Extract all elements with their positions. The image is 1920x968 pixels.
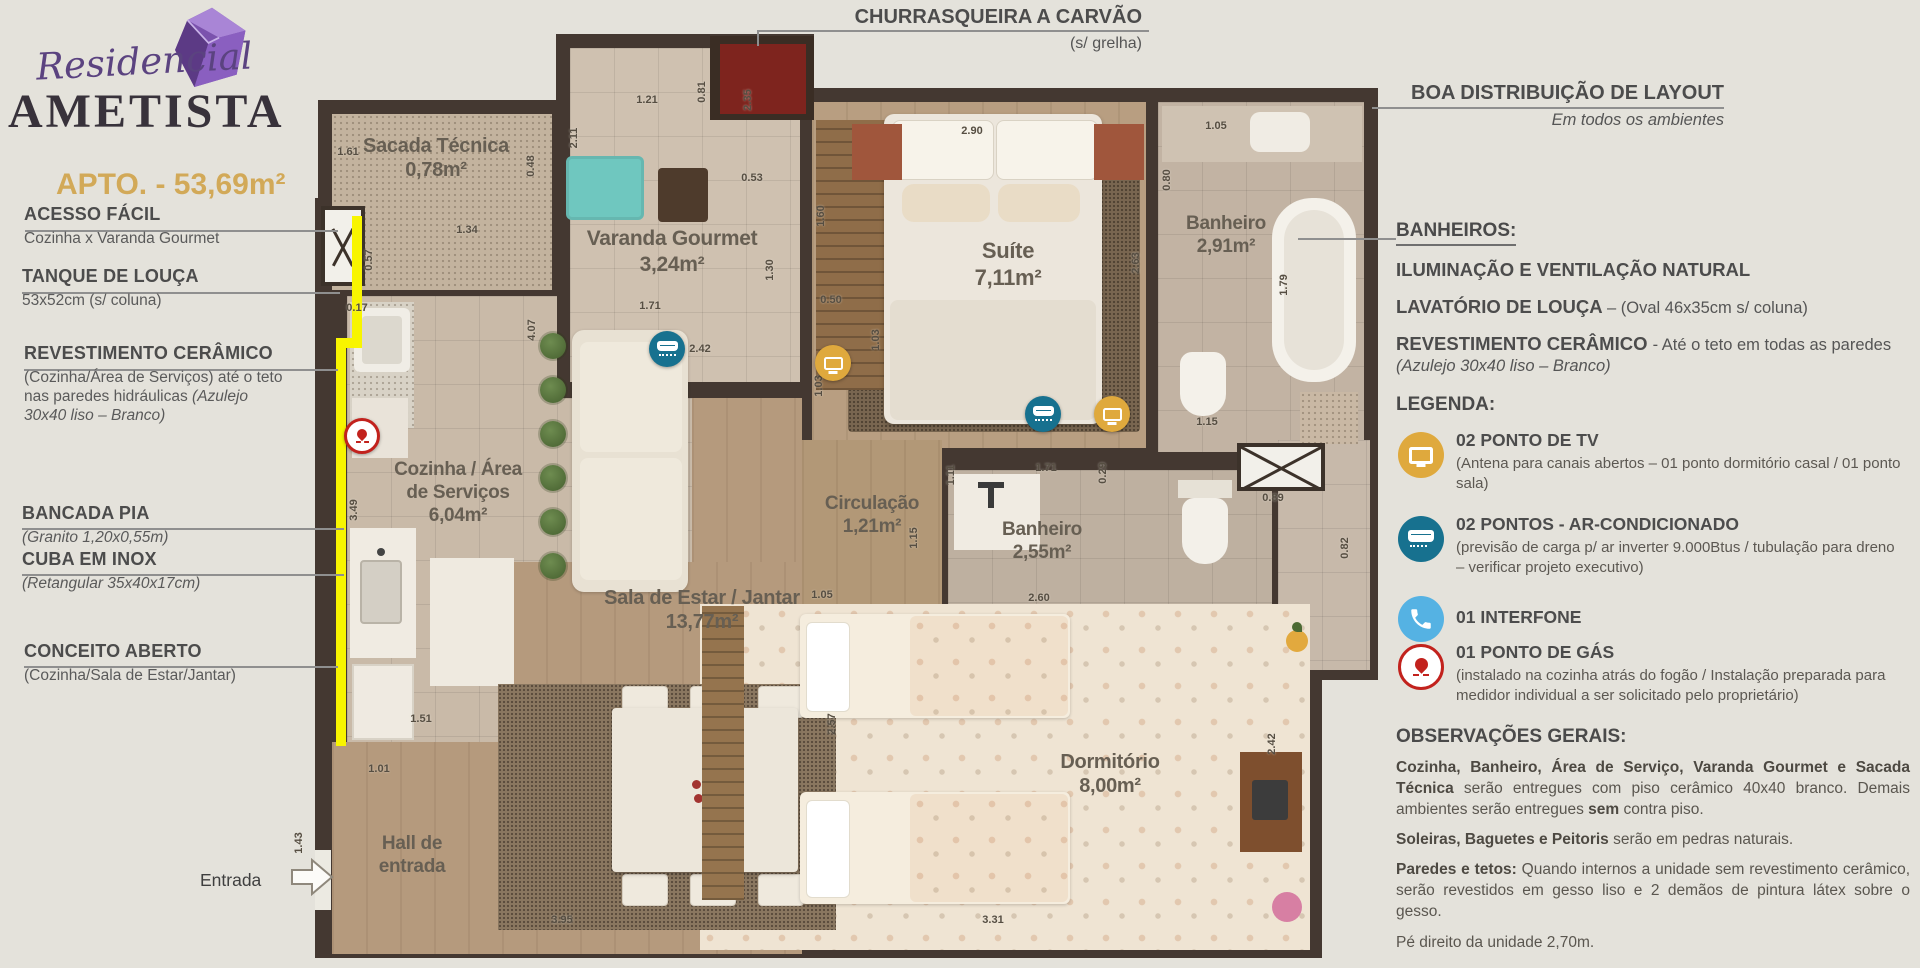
legend-item-title: 01 PONTO DE GÁS (1456, 642, 1903, 663)
dimension-label: 1.43 (293, 832, 305, 853)
ac-icon (649, 331, 685, 367)
chair (758, 874, 804, 906)
observacoes-paragraph: Paredes e tetos: Quando internos a unida… (1396, 859, 1910, 922)
dimension-label: 2.35 (742, 89, 754, 110)
annotation-desc: (Granito 1,20x0,55m) (22, 528, 284, 547)
plant-icon (540, 421, 566, 447)
dimension-label: 1.01 (368, 763, 389, 775)
entrada-label: Entrada (200, 870, 261, 891)
legend-item-tv: 02 PONTO DE TV (Antena para canais abert… (1398, 430, 1903, 495)
banheiros-line: REVESTIMENTO CERÂMICO - Até o teto em to… (1396, 332, 1912, 379)
legend-item-desc: (Antena para canais abertos – 01 ponto d… (1456, 454, 1903, 495)
dimension-label: 0.53 (741, 172, 762, 184)
room-label: Suíte7,11m² (975, 238, 1042, 292)
cuba-inox (360, 560, 402, 624)
annotation-title: CUBA EM INOX (22, 549, 157, 570)
dimension-label: 2.63 (1130, 252, 1142, 273)
annotation-bancada: BANCADA PIA (Granito 1,20x0,55m) (22, 503, 290, 547)
gas-icon (1398, 644, 1444, 690)
annotation-acesso-facil: ACESSO FÁCIL Cozinha x Varanda Gourmet (24, 204, 292, 248)
plant-icon (540, 333, 566, 359)
panel-title: BANHEIROS: (1396, 220, 1516, 246)
highlight-wall-yellow (336, 346, 346, 746)
dimension-label: 2.57 (826, 713, 838, 734)
dorm-wardrobe (702, 606, 744, 900)
legenda-title: LEGENDA: (1396, 394, 1495, 416)
chair (622, 874, 668, 906)
dimension-label: 3.31 (982, 914, 1003, 926)
dimension-label: 1.71 (1035, 462, 1056, 474)
banheiros-line: ILUMINAÇÃO E VENTILAÇÃO NATURAL (1396, 258, 1912, 283)
pink-pouf (1272, 892, 1302, 922)
entrada-arrow-icon (290, 858, 334, 896)
banheiro-social-toilet-tank (1178, 480, 1232, 498)
varanda-bench (566, 156, 644, 220)
nightstand (1094, 124, 1144, 180)
churrasqueira-grelha (720, 44, 806, 114)
banheiro-social-toilet (1182, 498, 1228, 564)
annotation-desc: (Retangular 35x40x17cm) (22, 574, 284, 593)
legend-item-title: 02 PONTOS - AR-CONDICIONADO (1456, 514, 1903, 535)
legend-item-title: 02 PONTO DE TV (1456, 430, 1903, 451)
pineapple-leaf (1292, 622, 1302, 632)
dimension-label: 0.89 (1262, 492, 1283, 504)
dimension-label: 2.42 (689, 343, 710, 355)
dimension-label: 0.29 (1097, 462, 1109, 483)
dimension-label: 2.11 (568, 128, 580, 149)
legend-item-ac: 02 PONTOS - AR-CONDICIONADO (previsão de… (1398, 514, 1903, 579)
tanque-cuba (362, 316, 402, 364)
dimension-label: 2.42 (1266, 733, 1278, 754)
panel-title: OBSERVAÇÕES GERAIS: (1396, 726, 1910, 748)
legend-item-gas: 01 PONTO DE GÁS (instalado na cozinha at… (1398, 642, 1903, 707)
dimension-label: 0.48 (525, 155, 537, 176)
room-label: Circulação1,21m² (825, 492, 919, 538)
plant-icon (540, 377, 566, 403)
dimension-label: 1.05 (1205, 120, 1226, 132)
dimension-label: 2.90 (961, 125, 982, 137)
dimension-label: 1.15 (908, 527, 920, 548)
suite-pillow (996, 120, 1098, 180)
banheiro-suite-shower (1300, 392, 1358, 444)
dimension-label: 1.34 (456, 224, 477, 236)
annotation-desc: 53x52cm (s/ coluna) (22, 291, 284, 310)
gas-icon (344, 418, 380, 454)
callout-title: CHURRASQUEIRA A CARVÃO (740, 6, 1142, 29)
kids-quilt (910, 794, 1068, 902)
nightstand (852, 124, 902, 180)
observacoes-paragraph: Pé direito da unidade 2,70m. (1396, 932, 1910, 953)
callout-title: BOA DISTRIBUIÇÃO DE LAYOUT (1396, 82, 1724, 105)
suite-cushion (902, 184, 990, 222)
ac-icon (1025, 396, 1061, 432)
banheiros-line: LAVATÓRIO DE LOUÇA – (Oval 46x35cm s/ co… (1396, 295, 1912, 320)
dimension-label: 2.60 (1028, 592, 1049, 604)
legend-item-desc: (previsão de carga p/ ar inverter 9.000B… (1456, 538, 1903, 579)
annotation-cuba: CUBA EM INOX (Retangular 35x40x17cm) (22, 549, 290, 593)
annotation-tanque: TANQUE DE LOUÇA 53x52cm (s/ coluna) (22, 266, 290, 310)
annotation-desc: (Cozinha/Sala de Estar/Jantar) (24, 666, 286, 685)
dorm-laptop (1252, 780, 1288, 820)
faucet (377, 548, 385, 556)
dimension-label: 3.95 (551, 914, 572, 926)
dimension-label: 1.03 (870, 329, 882, 350)
dimension-label: 0.81 (696, 81, 708, 102)
dimension-label: 0.82 (1339, 537, 1351, 558)
annotation-title: BANCADA PIA (22, 503, 150, 524)
dimension-label: 1.61 (337, 146, 358, 158)
dimension-label: 0.17 (346, 302, 367, 314)
dimension-label: 0.57 (363, 249, 375, 270)
dimension-label: 4.07 (526, 319, 538, 340)
banheiro-suite-sink (1250, 112, 1310, 152)
room-label: Varanda Gourmet3,24m² (587, 226, 758, 277)
dimension-label: 1.15 (1196, 416, 1217, 428)
ac-icon (1398, 516, 1444, 562)
kids-pillow (806, 800, 850, 898)
observacoes-paragraph: Cozinha, Banheiro, Área de Serviço, Vara… (1396, 757, 1910, 820)
fridge (352, 664, 414, 740)
observacoes-paragraph: Soleiras, Baguetes e Peitoris serão em p… (1396, 829, 1910, 850)
highlight-wall-yellow (352, 216, 362, 346)
panel-banheiros: BANHEIROS: ILUMINAÇÃO E VENTILAÇÃO NATUR… (1396, 220, 1912, 378)
tv-icon (1398, 432, 1444, 478)
tv-icon (1094, 396, 1130, 432)
room-label: Banheiro2,55m² (1002, 518, 1082, 564)
dimension-label: 0.80 (1161, 169, 1173, 190)
callout-churrasqueira: CHURRASQUEIRA A CARVÃO (s/ grelha) (740, 6, 1142, 53)
annotation-revestimento: REVESTIMENTO CERÂMICO (Cozinha/Área de S… (24, 343, 292, 426)
callout-sub: Em todos os ambientes (1396, 111, 1724, 130)
kids-pillow (806, 622, 850, 712)
table-decor (692, 780, 701, 789)
room-label: Sala de Estar / Jantar13,77m² (604, 586, 800, 635)
panel-observacoes: OBSERVAÇÕES GERAIS: Cozinha, Banheiro, Á… (1396, 726, 1910, 953)
dimension-label: 1.05 (811, 589, 832, 601)
dimension-label: 1.79 (1278, 274, 1290, 295)
dimension-label: 1.11 (945, 465, 957, 486)
varanda-table (658, 168, 708, 222)
leader-line (1298, 238, 1396, 240)
annotation-title: REVESTIMENTO CERÂMICO (24, 343, 273, 364)
banheiro-suite-tub-inner (1284, 210, 1344, 370)
sofa-cushion (580, 458, 682, 580)
kitchen-cabinet (430, 558, 514, 686)
plant-icon (540, 509, 566, 535)
pineapple-decor (1286, 630, 1308, 652)
annotation-title: CONCEITO ABERTO (24, 641, 202, 662)
annotation-conceito: CONCEITO ABERTO (Cozinha/Sala de Estar/J… (24, 641, 292, 685)
dimension-label: 1.71 (639, 300, 660, 312)
dimension-label: 1.60 (815, 205, 827, 226)
room-label: Sacada Técnica0,78m² (363, 134, 509, 183)
floor-corredor (692, 398, 802, 564)
kids-quilt (910, 616, 1068, 716)
floor-plan-page: Residencial AMETISTA APTO. - 53,69m² ACE… (0, 0, 1920, 968)
legend-item-interfone: 01 INTERFONE (1398, 596, 1903, 628)
room-label: Hall deentrada (379, 832, 446, 878)
dimension-label: 0.50 (820, 294, 841, 306)
annotation-desc: (Cozinha/Área de Serviços) até o teto na… (24, 368, 286, 426)
banheiro-social-faucet (978, 482, 1004, 488)
shaft-x-box (1237, 443, 1325, 491)
annotation-title: ACESSO FÁCIL (24, 204, 160, 225)
room-label: Cozinha / Áreade Serviços6,04m² (394, 458, 522, 528)
annotation-title: TANQUE DE LOUÇA (22, 266, 199, 287)
phone-icon (1398, 596, 1444, 642)
callout-sub: (s/ grelha) (740, 35, 1142, 53)
plant-icon (540, 553, 566, 579)
dimension-label: 1.21 (636, 94, 657, 106)
suite-cushion (998, 184, 1080, 222)
suite-blanket (890, 300, 1096, 420)
room-label: Banheiro2,91m² (1186, 212, 1266, 258)
dimension-label: 1.30 (764, 259, 776, 280)
callout-layout: BOA DISTRIBUIÇÃO DE LAYOUT Em todos os a… (1396, 82, 1724, 130)
plant-icon (540, 465, 566, 491)
dimension-label: 1.51 (410, 713, 431, 725)
annotation-desc: Cozinha x Varanda Gourmet (24, 229, 286, 248)
banheiro-suite-toilet (1180, 352, 1226, 416)
legend-item-desc: (instalado na cozinha atrás do fogão / I… (1456, 666, 1903, 707)
room-label: Dormitório8,00m² (1060, 750, 1159, 799)
tv-icon (815, 345, 851, 381)
legend-item-title: 01 INTERFONE (1456, 607, 1903, 628)
dimension-label: 3.49 (348, 499, 360, 520)
